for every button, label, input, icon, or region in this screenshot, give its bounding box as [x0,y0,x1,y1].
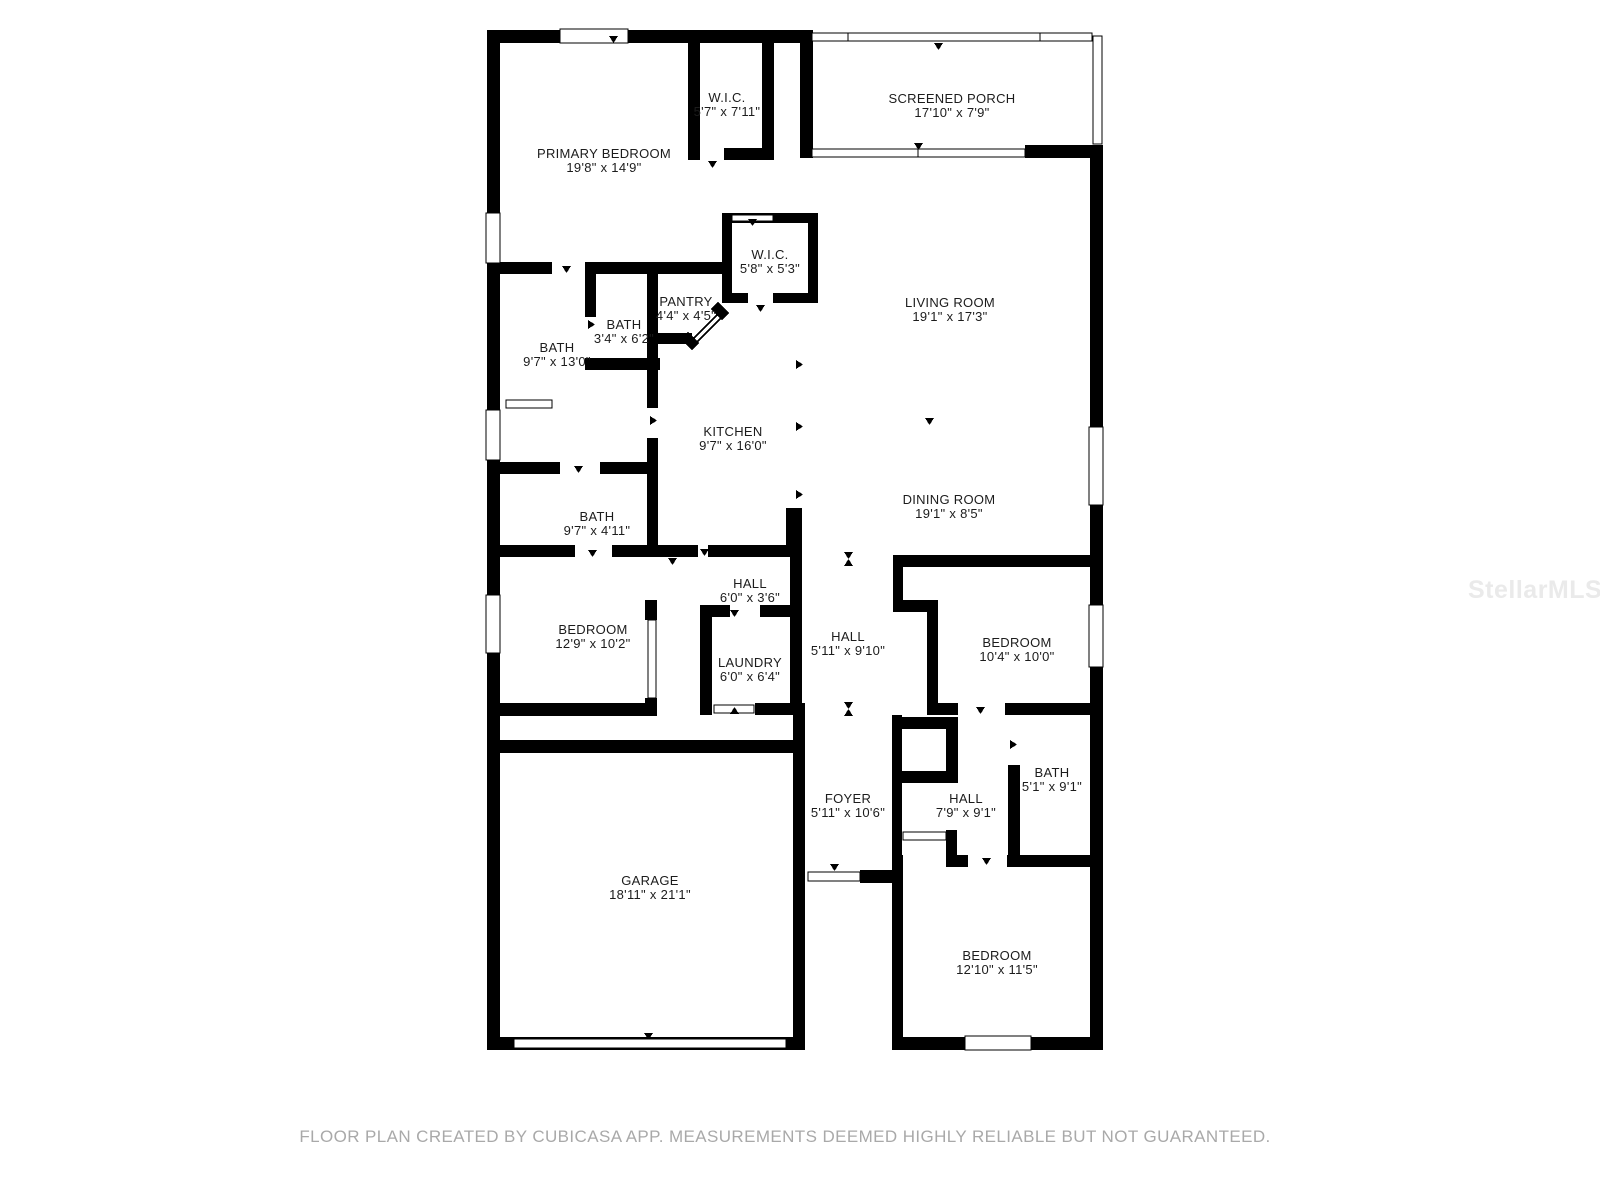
room-name: BATH [540,340,575,355]
room-dims: 9'7" x 4'11" [564,524,631,538]
room-dims: 5'11" x 10'6" [811,806,885,820]
floor-plan-drawing [0,0,1600,1200]
room-label-bath-small: BATH3'4" x 6'2" [594,318,654,346]
room-name: HALL [949,791,983,806]
room-label-bedroom-left: BEDROOM12'9" x 10'2" [555,623,630,651]
footer-disclaimer: FLOOR PLAN CREATED BY CUBICASA APP. MEAS… [0,1127,1570,1147]
room-dims: 5'11" x 9'10" [811,644,885,658]
room-name: PRIMARY BEDROOM [537,146,671,161]
room-name: HALL [831,629,865,644]
room-name: BATH [607,317,642,332]
room-label-living-room: LIVING ROOM19'1" x 17'3" [905,296,995,324]
room-dims: 5'1" x 9'1" [1022,780,1082,794]
room-dims: 5'7" x 7'11" [694,105,761,119]
room-name: GARAGE [621,873,678,888]
room-label-foyer: FOYER5'11" x 10'6" [811,792,885,820]
room-dims: 18'11" x 21'1" [609,888,691,902]
room-dims: 19'8" x 14'9" [537,161,671,175]
room-name: BATH [1035,765,1070,780]
room-dims: 9'7" x 16'0" [699,439,767,453]
room-label-hall-rear: HALL7'9" x 9'1" [936,792,996,820]
room-label-bath-hall: BATH5'1" x 9'1" [1022,766,1082,794]
room-label-bedroom-right: BEDROOM10'4" x 10'0" [979,636,1054,664]
room-dims: 19'1" x 17'3" [905,310,995,324]
room-name: BEDROOM [962,948,1031,963]
room-dims: 3'4" x 6'2" [594,332,654,346]
room-label-bath-primary: BATH9'7" x 13'0" [523,341,591,369]
room-label-bath-middle: BATH9'7" x 4'11" [564,510,631,538]
room-name: SCREENED PORCH [889,91,1016,106]
room-name: W.I.C. [751,247,788,262]
room-name: W.I.C. [708,90,745,105]
room-label-wic-2: W.I.C.5'8" x 5'3" [740,248,800,276]
room-dims: 5'8" x 5'3" [740,262,800,276]
room-label-bedroom-bottom: BEDROOM12'10" x 11'5" [956,949,1038,977]
room-name: BEDROOM [558,622,627,637]
room-dims: 19'1" x 8'5" [903,507,996,521]
room-name: FOYER [825,791,871,806]
room-dims: 4'4" x 4'5" [656,309,716,323]
floor-plan-page: PRIMARY BEDROOM19'8" x 14'9" W.I.C.5'7" … [0,0,1600,1200]
room-name: HALL [733,576,767,591]
room-dims: 6'0" x 3'6" [720,591,780,605]
room-dims: 12'10" x 11'5" [956,963,1038,977]
room-label-pantry: PANTRY4'4" x 4'5" [656,295,716,323]
room-name: BEDROOM [982,635,1051,650]
room-label-kitchen: KITCHEN9'7" x 16'0" [699,425,767,453]
room-dims: 10'4" x 10'0" [979,650,1054,664]
room-dims: 17'10" x 7'9" [889,106,1016,120]
room-name: LAUNDRY [718,655,782,670]
room-name: KITCHEN [703,424,762,439]
room-name: LIVING ROOM [905,295,995,310]
room-dims: 12'9" x 10'2" [555,637,630,651]
room-label-garage: GARAGE18'11" x 21'1" [609,874,691,902]
room-dims: 9'7" x 13'0" [523,355,591,369]
room-label-hall-small: HALL6'0" x 3'6" [720,577,780,605]
room-label-wic-1: W.I.C.5'7" x 7'11" [694,91,761,119]
room-dims: 7'9" x 9'1" [936,806,996,820]
room-label-hall-center: HALL5'11" x 9'10" [811,630,885,658]
room-label-primary-bedroom: PRIMARY BEDROOM19'8" x 14'9" [537,147,671,175]
room-name: DINING ROOM [903,492,996,507]
room-name: BATH [580,509,615,524]
room-name: PANTRY [659,294,712,309]
stellar-mls-watermark: StellarMLS [1468,576,1600,605]
room-label-dining-room: DINING ROOM19'1" x 8'5" [903,493,996,521]
room-label-laundry: LAUNDRY6'0" x 6'4" [718,656,782,684]
room-label-screened-porch: SCREENED PORCH17'10" x 7'9" [889,92,1016,120]
interior-walls [487,30,1103,1050]
room-dims: 6'0" x 6'4" [718,670,782,684]
